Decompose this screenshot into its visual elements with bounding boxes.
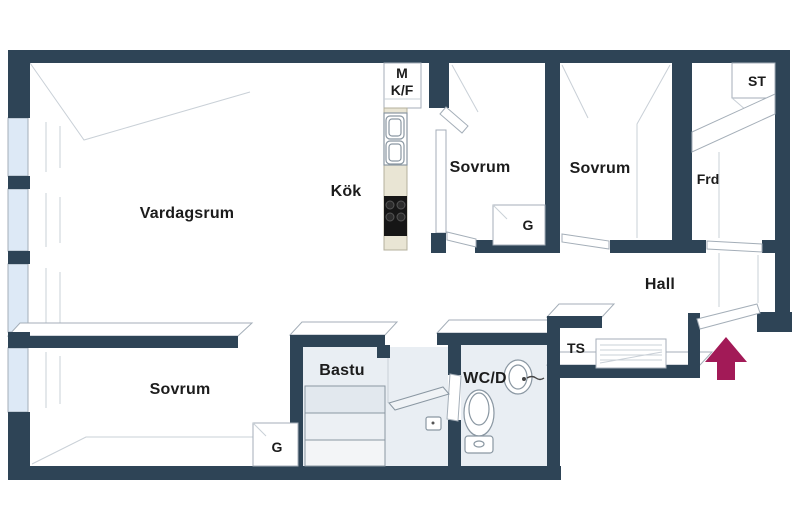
room-label-ts: TS xyxy=(567,340,585,356)
room-label-hall: Hall xyxy=(645,276,675,293)
stove-icon xyxy=(384,196,407,236)
cabinet-label-kf: K/F xyxy=(391,82,414,98)
room-label-frd: Frd xyxy=(697,171,720,187)
toilet-icon xyxy=(464,390,494,453)
room-label-vardagsrum: Vardagsrum xyxy=(140,205,234,222)
room-label-kok: Kök xyxy=(331,183,362,200)
entrance-arrow-icon xyxy=(705,337,747,380)
closet-label-g2: G xyxy=(272,439,283,455)
floorplan-image: Vardagsrum Kök Sovrum Sovrum Sovrum Hall… xyxy=(0,0,793,530)
floorplan: Vardagsrum Kök Sovrum Sovrum Sovrum Hall… xyxy=(0,0,793,530)
door-leaf xyxy=(447,374,461,421)
door-leaf xyxy=(562,234,609,249)
room-label-st: ST xyxy=(748,73,766,89)
closet-label-g1: G xyxy=(523,217,534,233)
door-leaf xyxy=(440,107,468,133)
window xyxy=(8,348,60,412)
room-label-bastu: Bastu xyxy=(319,362,364,379)
closet-g1 xyxy=(493,205,545,245)
room-label-wcd: WC/D xyxy=(463,370,506,387)
window xyxy=(8,118,60,176)
sauna-heater-icon xyxy=(426,417,441,430)
door-leaf xyxy=(707,241,762,252)
kitchen-sink-icon xyxy=(384,113,407,165)
entrance-door-leaf xyxy=(697,304,760,329)
window xyxy=(8,264,60,332)
room-label-sovrum-3: Sovrum xyxy=(150,381,211,398)
door-leaf xyxy=(447,232,476,247)
slatted-rack-icon xyxy=(596,339,666,368)
window xyxy=(8,189,60,251)
storage-shelf xyxy=(692,94,775,152)
room-label-sovrum-1: Sovrum xyxy=(450,159,511,176)
windows xyxy=(8,118,60,412)
room-label-sovrum-2: Sovrum xyxy=(570,160,631,177)
cabinet-label-m: M xyxy=(396,65,408,81)
